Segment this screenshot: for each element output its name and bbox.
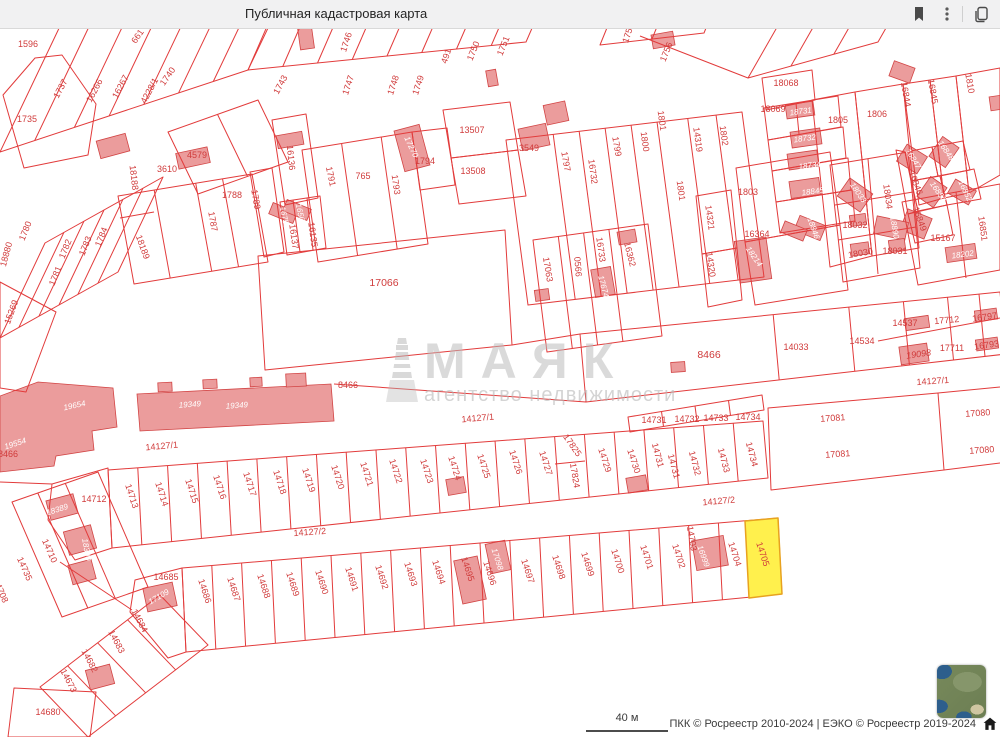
parcel-label: 14534: [849, 336, 874, 346]
parcel-label: 14698: [550, 554, 567, 581]
parcel-label: 13508: [460, 166, 485, 176]
parcel-label: 14702: [670, 543, 687, 570]
parcel-label: 1806: [867, 109, 887, 119]
parcel-label: 14700: [609, 548, 626, 575]
parcel-label: 14693: [402, 561, 419, 588]
parcel-label: 1787: [206, 211, 219, 232]
parcel-label: 16364: [744, 229, 769, 239]
parcel-label: 1797: [559, 151, 572, 172]
parcel-label: 14733: [716, 447, 732, 474]
parcel-label: 14686: [196, 578, 213, 605]
parcel-label: 16793: [973, 338, 999, 351]
parcel-label: 18068: [773, 78, 798, 88]
parcel-label: 14689: [284, 571, 301, 598]
parcel-label: 14127/2: [702, 495, 735, 508]
parcel-label: 1747: [340, 74, 356, 96]
parcel-label: 1800: [639, 131, 652, 152]
minimap-thumbnail[interactable]: [937, 665, 986, 718]
toolbar-separator: [962, 6, 963, 22]
parcel-label: 16135: [306, 221, 319, 247]
browser-toolbar: Публичная кадастровая карта: [0, 0, 1000, 29]
cadastral-map[interactable]: 1596661173716266162674228/11740174317461…: [0, 0, 1000, 737]
parcel-label: 14725: [475, 453, 492, 480]
parcel-label: 1789: [249, 189, 262, 210]
parcel-label: 14680: [35, 707, 60, 717]
parcel-label: 17063: [541, 256, 555, 282]
parcel-label: 17081: [820, 412, 846, 424]
parcel-label: 1803: [738, 187, 758, 197]
buildings-layer: [0, 26, 1000, 690]
parcel-label: 14701: [638, 544, 655, 571]
parcel-label: 491: [439, 47, 453, 64]
parcel-label: 16845: [926, 78, 940, 104]
parcel-label: 13507: [459, 125, 484, 135]
parcel-label: 14685: [153, 572, 178, 582]
parcel-label: 1801: [675, 180, 688, 201]
kebab-menu-icon[interactable]: [938, 5, 956, 23]
parcel-label: 14730: [625, 448, 642, 475]
parcel-label: 3610: [157, 164, 177, 174]
parcel-label: 14729: [596, 447, 613, 474]
parcel-label: 4228/1: [138, 76, 160, 105]
parcel-label: 14721: [358, 461, 375, 488]
parcel-label: 16797: [971, 310, 997, 323]
parcel-label: 18069: [760, 104, 785, 114]
parcel-label: 14724: [446, 455, 463, 482]
parcel-label: 14692: [373, 564, 390, 591]
parcel-label: 1596: [18, 39, 38, 49]
parcel-label: 1748: [385, 74, 401, 96]
parcel-label: 661: [129, 27, 146, 45]
parcel-label: 17825: [561, 432, 584, 458]
parcel-label: 14719: [300, 467, 317, 494]
parcel-label: 1794: [415, 156, 435, 166]
parcel-label: 18031: [882, 246, 907, 256]
page-title: Публичная кадастровая карта: [245, 0, 427, 28]
parcel-label: 14683: [106, 628, 127, 655]
parcel-label: 1791: [324, 166, 338, 188]
parcel-label: 16137: [287, 223, 300, 249]
parcel-label: 19349: [225, 400, 248, 411]
parcel-label: 14704: [726, 541, 743, 568]
parcel-label: 1810: [963, 73, 976, 94]
parcel-label: 4579: [187, 150, 207, 160]
parcel-label: 3549: [519, 143, 539, 153]
parcel-label: 1750: [465, 40, 482, 62]
parcel-label: 15167: [930, 233, 955, 243]
parcel-label: 1743: [271, 73, 289, 95]
parcel-label: 765: [355, 171, 370, 181]
parcel-label: 14732: [687, 450, 703, 477]
parcel-label: 14687: [225, 576, 242, 603]
tabs-icon[interactable]: [972, 5, 990, 23]
parcel-label: 16362: [622, 241, 638, 268]
parcel-label: 14712: [81, 494, 106, 504]
parcel-label: 1788: [222, 190, 242, 200]
parcel-label: 14688: [255, 573, 272, 600]
parcel-label: 18845: [801, 185, 825, 197]
parcel-label: 18734: [798, 159, 822, 171]
parcel-label: 17080: [969, 444, 995, 456]
parcel-label: 14710: [40, 537, 59, 564]
parcel-label: 16267: [110, 73, 131, 100]
parcel-label: 14731: [650, 442, 666, 469]
parcel-label: 14722: [387, 458, 404, 485]
parcel-label: 18188: [127, 165, 140, 191]
parcel-label: 0566: [572, 256, 584, 277]
parcel-label: 14731: [641, 415, 666, 425]
parcel-label: 14731: [666, 453, 682, 480]
parcel-label: 17080: [965, 407, 991, 419]
scale-line: [586, 725, 668, 732]
parcel-label: 16732: [586, 158, 599, 184]
parcel-label: 14127/1: [145, 440, 178, 453]
parcel-label: 14733: [703, 413, 728, 423]
parcel-label: 1737: [51, 77, 69, 99]
home-button[interactable]: [983, 717, 997, 731]
parcel-label: 16851: [976, 215, 989, 241]
parcel-label: 14127/1: [461, 412, 494, 425]
parcel-label: 14684: [129, 607, 150, 634]
parcel-label: 17066: [369, 277, 398, 289]
parcel-label: 1781: [47, 265, 64, 287]
parcel-label: 14033: [783, 342, 808, 352]
parcel-label: 14320: [704, 251, 717, 277]
parcel-label: 18880: [0, 241, 14, 268]
parcel-label: 14713: [123, 483, 140, 510]
parcel-label: 16844: [899, 81, 913, 107]
parcel-label: 1735: [17, 114, 37, 124]
parcel-label: 14127/1: [916, 375, 949, 387]
parcel-label: 17824: [568, 462, 582, 488]
parcel-label: 1780: [17, 220, 34, 242]
parcel-label: 19349: [178, 399, 201, 410]
parcel-label: 14723: [418, 458, 435, 485]
parcel-label: 17711: [940, 343, 964, 353]
parcel-label: 14699: [579, 551, 596, 578]
parcel-label: 18034: [881, 183, 894, 209]
parcel-label: 1805: [828, 115, 848, 125]
parcel-label: 14708: [0, 577, 10, 604]
parcel-label: 18189: [134, 234, 152, 261]
parcel-labels-layer: 1596661173716266162674228/11740174317461…: [0, 22, 1000, 717]
parcel-label: 1746: [338, 31, 354, 53]
parcel-label: 15269: [2, 299, 20, 326]
parcel-label: 14734: [735, 412, 760, 422]
parcel-label: 14694: [430, 559, 447, 586]
parcel-label: 14718: [271, 469, 288, 496]
scale-bar: 40 м: [586, 712, 668, 732]
parcel-label: 14690: [313, 569, 330, 596]
scale-label: 40 м: [616, 712, 639, 724]
parcel-label: 1793: [390, 174, 403, 195]
parcel-label: 16136: [285, 145, 298, 171]
attribution-text: ПКК © Росреестр 2010-2024 | ЕЭКО © Росре…: [670, 718, 977, 730]
parcel-label: 14716: [211, 474, 228, 501]
parcel-label: 14127/2: [293, 526, 326, 538]
parcel-label: 14319: [691, 126, 704, 152]
parcel-label: 14726: [507, 449, 524, 476]
parcel-label: 14321: [703, 204, 716, 230]
parcel-label: 1751: [495, 35, 512, 57]
parcel-label: 14537: [892, 318, 917, 328]
parcel-label: 14682: [79, 647, 100, 674]
parcel-label: 14735: [15, 555, 34, 582]
parcel-label: 14697: [519, 558, 536, 585]
parcel-label: 8466: [697, 349, 721, 361]
parcel-label: 17081: [825, 448, 851, 460]
parcel-label: 8466: [338, 380, 358, 390]
parcel-label: 18032: [842, 220, 867, 230]
parcel-label: 14717: [241, 471, 258, 498]
parcel-label: 1749: [410, 74, 426, 96]
bookmark-icon[interactable]: [910, 5, 928, 23]
parcel-label: 1783: [77, 235, 94, 257]
parcel-label: 14691: [343, 566, 360, 593]
parcel-lines-layer: [0, 0, 1000, 737]
parcel-label: 17712: [934, 314, 960, 326]
parcel-label: 14734: [744, 441, 760, 468]
parcel-label: 1799: [610, 136, 623, 157]
parcel-label: 14732: [674, 414, 699, 424]
parcel-label: 14720: [329, 464, 346, 491]
parcel-label: 14714: [153, 481, 170, 508]
parcel-label: 14727: [537, 450, 554, 477]
parcel-label: 8466: [0, 449, 18, 459]
